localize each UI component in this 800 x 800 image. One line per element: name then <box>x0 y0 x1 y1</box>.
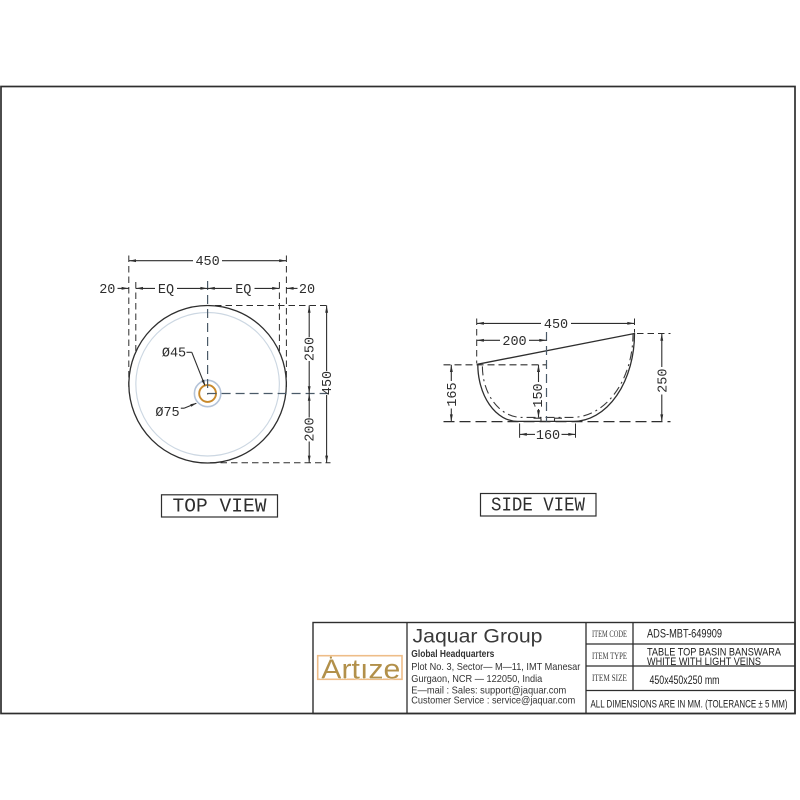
svg-text:TOP VIEW: TOP VIEW <box>173 496 268 518</box>
svg-text:ITEM CODE: ITEM CODE <box>592 630 627 640</box>
svg-text:Ø45: Ø45 <box>162 347 186 362</box>
svg-text:Artıze: Artıze <box>321 654 400 685</box>
svg-text:ALL DIMENSIONS ARE IN MM. (TOL: ALL DIMENSIONS ARE IN MM. (TOLERANCE ± 5… <box>591 698 788 710</box>
svg-text:Gurgaon, NCR — 122050, India: Gurgaon, NCR — 122050, India <box>411 673 542 685</box>
svg-text:20: 20 <box>99 283 115 298</box>
svg-text:Plot No. 3, Sector— M—11, IMT: Plot No. 3, Sector— M—11, IMT Manesar <box>411 661 580 673</box>
svg-text:Customer Service : service@jaq: Customer Service : service@jaquar.com <box>411 695 575 707</box>
svg-text:150: 150 <box>532 383 547 407</box>
svg-text:200: 200 <box>502 335 526 350</box>
svg-text:Global Headquarters: Global Headquarters <box>411 648 494 660</box>
svg-text:250: 250 <box>304 337 319 361</box>
svg-text:200: 200 <box>304 417 319 441</box>
svg-text:Jaquar Group: Jaquar Group <box>413 627 543 648</box>
svg-text:SIDE VIEW: SIDE VIEW <box>491 495 586 517</box>
svg-text:WHITE WITH LIGHT VEINS: WHITE WITH LIGHT VEINS <box>647 656 761 668</box>
svg-text:Ø75: Ø75 <box>155 406 179 421</box>
svg-text:ITEM TYPE: ITEM TYPE <box>592 652 627 662</box>
svg-text:ADS-MBT-649909: ADS-MBT-649909 <box>647 627 722 641</box>
svg-text:450: 450 <box>321 371 336 395</box>
svg-text:450: 450 <box>195 255 219 270</box>
svg-text:ITEM SIZE: ITEM SIZE <box>592 674 627 684</box>
svg-text:160: 160 <box>536 429 560 444</box>
svg-text:165: 165 <box>446 382 461 406</box>
svg-text:450: 450 <box>544 318 568 333</box>
svg-text:250: 250 <box>656 369 671 393</box>
svg-text:EQ: EQ <box>235 283 251 298</box>
svg-text:20: 20 <box>299 283 315 298</box>
svg-text:450x450x250 mm: 450x450x250 mm <box>650 673 720 687</box>
svg-text:EQ: EQ <box>158 283 174 298</box>
